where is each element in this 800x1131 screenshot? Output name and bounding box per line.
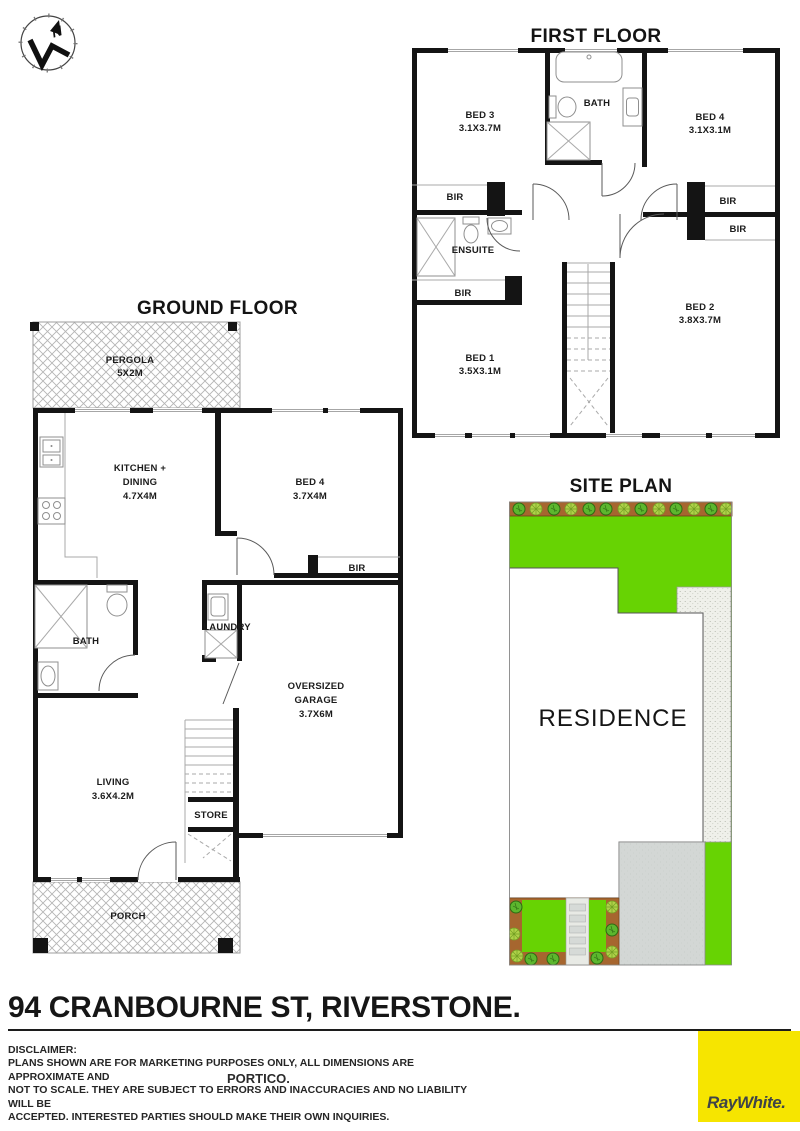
label-laundry: LAUNDRY	[203, 622, 251, 633]
garden-lawn-patch	[522, 900, 566, 952]
label-living: LIVING	[97, 777, 130, 788]
label-bir-ensuite: BIR	[455, 288, 472, 299]
label-bed3: BED 3	[466, 110, 495, 121]
label-porch: PORCH	[110, 911, 145, 922]
portico-label: PORTICO.	[227, 1071, 290, 1086]
ground-toilet-icon	[107, 585, 127, 616]
site-plan: RESIDENCE	[509, 500, 733, 967]
ensuite-sink-icon	[488, 218, 511, 234]
label-garage-dims: 3.7X6M	[299, 709, 333, 720]
kitchen-sink-icon	[40, 437, 63, 467]
ensuite-toilet-icon	[463, 217, 479, 243]
label-kitchen2: DINING	[123, 477, 157, 488]
shower-icon	[547, 122, 590, 160]
address-underline	[8, 1029, 791, 1031]
label-pergola: PERGOLA	[106, 355, 154, 366]
floorplan-sheet: N FIRST FLOOR	[0, 0, 800, 1131]
label-garage2: GARAGE	[295, 695, 338, 706]
label-living-dims: 3.6X4.2M	[92, 791, 134, 802]
label-bir-left: BIR	[447, 192, 464, 203]
label-gbath: BATH	[73, 636, 99, 647]
ground-sink-icon	[38, 662, 58, 690]
label-bed4: BED 4	[696, 112, 725, 123]
label-gbed4: BED 4	[296, 477, 325, 488]
label-kitchen1: KITCHEN +	[114, 463, 166, 474]
label-garage1: OVERSIZED	[288, 681, 345, 692]
disclaimer-line: NOT TO SCALE. THEY ARE SUBJECT TO ERRORS…	[8, 1084, 478, 1111]
toilet-icon	[549, 96, 576, 118]
property-address: 94 CRANBOURNE ST, RIVERSTONE.	[8, 991, 788, 1025]
disclaimer-line: ACCEPTED. INTERESTED PARTIES SHOULD MAKE…	[8, 1111, 478, 1124]
cooktop-icon	[38, 498, 65, 524]
raywhite-logo: RayWhite.	[698, 1031, 800, 1122]
label-bed1: BED 1	[466, 353, 495, 364]
compass-icon: N	[16, 10, 80, 76]
compass-north-label: N	[50, 22, 65, 41]
ground-floor-plan: PERGOLA 5X2M KITCHEN + DINING 4.7X4M BED…	[25, 318, 410, 978]
label-bed3-dims: 3.1X3.7M	[459, 123, 501, 134]
ground-stairs	[185, 720, 233, 863]
bathtub-icon	[556, 52, 622, 82]
garden-lawn-patch-2	[589, 900, 606, 952]
label-bed2-dims: 3.8X3.7M	[679, 315, 721, 326]
label-bir-right2: BIR	[730, 224, 747, 235]
label-pergola-dims: 5X2M	[117, 368, 143, 379]
kitchen-counter	[65, 413, 97, 578]
first-floor-plan: BED 3 3.1X3.7M BATH BED 4 3.1X3.1M BIR B…	[410, 42, 782, 440]
label-gbir: BIR	[349, 563, 366, 574]
site-plan-title: SITE PLAN	[509, 476, 733, 498]
label-store: STORE	[194, 810, 228, 821]
disclaimer-heading: DISCLAIMER:	[8, 1044, 478, 1057]
ensuite-shower-icon	[417, 218, 455, 276]
label-bed4-dims: 3.1X3.1M	[689, 125, 731, 136]
label-gbed4-dims: 3.7X4M	[293, 491, 327, 502]
label-kitchen-dims: 4.7X4M	[123, 491, 157, 502]
label-bir-right1: BIR	[720, 196, 737, 207]
ground-floor-title: GROUND FLOOR	[25, 298, 410, 320]
label-bath: BATH	[584, 98, 610, 109]
vanity-icon	[623, 88, 642, 126]
stairs	[567, 263, 610, 426]
label-residence: RESIDENCE	[538, 705, 687, 732]
label-ensuite: ENSUITE	[452, 245, 495, 256]
compass-needle	[30, 40, 69, 65]
label-bed1-dims: 3.5X3.1M	[459, 366, 501, 377]
label-bed2: BED 2	[686, 302, 715, 313]
raywhite-logo-text: RayWhite.	[707, 1093, 786, 1113]
driveway	[619, 842, 705, 965]
